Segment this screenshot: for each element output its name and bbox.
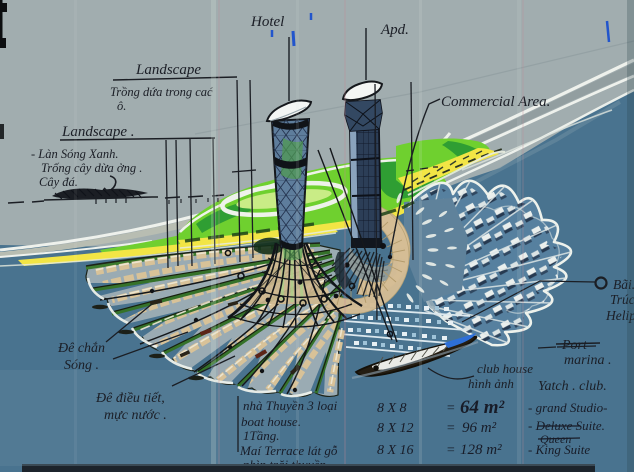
svg-text:boat house.: boat house.: [241, 414, 301, 429]
svg-text:marina .: marina .: [564, 353, 611, 368]
svg-text:- King Suite: - King Suite: [528, 442, 590, 457]
svg-text:96 m²: 96 m²: [462, 420, 497, 436]
svg-text:ô.: ô.: [117, 99, 126, 113]
svg-text:=: =: [446, 421, 455, 436]
svg-text:128 m²: 128 m²: [460, 442, 502, 458]
svg-text:Landscape .: Landscape .: [61, 124, 135, 140]
svg-text:1Tầng.: 1Tầng.: [243, 428, 279, 443]
svg-text:Sóng .: Sóng .: [64, 358, 99, 373]
svg-text:Cây đá.: Cây đá.: [39, 175, 78, 189]
svg-text:Port: Port: [561, 338, 588, 353]
svg-text:8 X 8: 8 X 8: [377, 401, 407, 416]
svg-text:Trống cây dừa ởng .: Trống cây dừa ởng .: [41, 161, 142, 175]
svg-text:Apd.: Apd.: [380, 22, 409, 38]
svg-text:- grand Studio-: - grand Studio-: [528, 400, 607, 415]
svg-text:Commercial Area.: Commercial Area.: [441, 94, 550, 110]
svg-text:=: =: [446, 401, 455, 416]
svg-text:Landscape: Landscape: [135, 62, 201, 78]
svg-text:=: =: [446, 443, 455, 458]
svg-text:Trồng dứa trong cać: Trồng dứa trong cać: [110, 85, 213, 99]
svg-text:club house: club house: [477, 361, 533, 376]
svg-text:64 m²: 64 m²: [460, 397, 506, 418]
svg-text:8 X 16: 8 X 16: [377, 443, 414, 458]
svg-text:Đê điều tiết,: Đê điều tiết,: [95, 391, 165, 406]
svg-text:Hotel: Hotel: [250, 14, 284, 30]
svg-text:Yatch . club.: Yatch . club.: [538, 379, 607, 394]
svg-text:nhà Thuyền 3 loại: nhà Thuyền 3 loại: [243, 398, 338, 413]
svg-text:hình ảnh: hình ảnh: [468, 376, 514, 391]
svg-text:Maí Terrace lát gỗ: Maí Terrace lát gỗ: [239, 443, 338, 458]
svg-text:mực nước .: mực nước .: [104, 408, 167, 423]
svg-text:8 X 12: 8 X 12: [377, 421, 414, 436]
svg-text:Đê chắn: Đê chắn: [57, 341, 105, 356]
